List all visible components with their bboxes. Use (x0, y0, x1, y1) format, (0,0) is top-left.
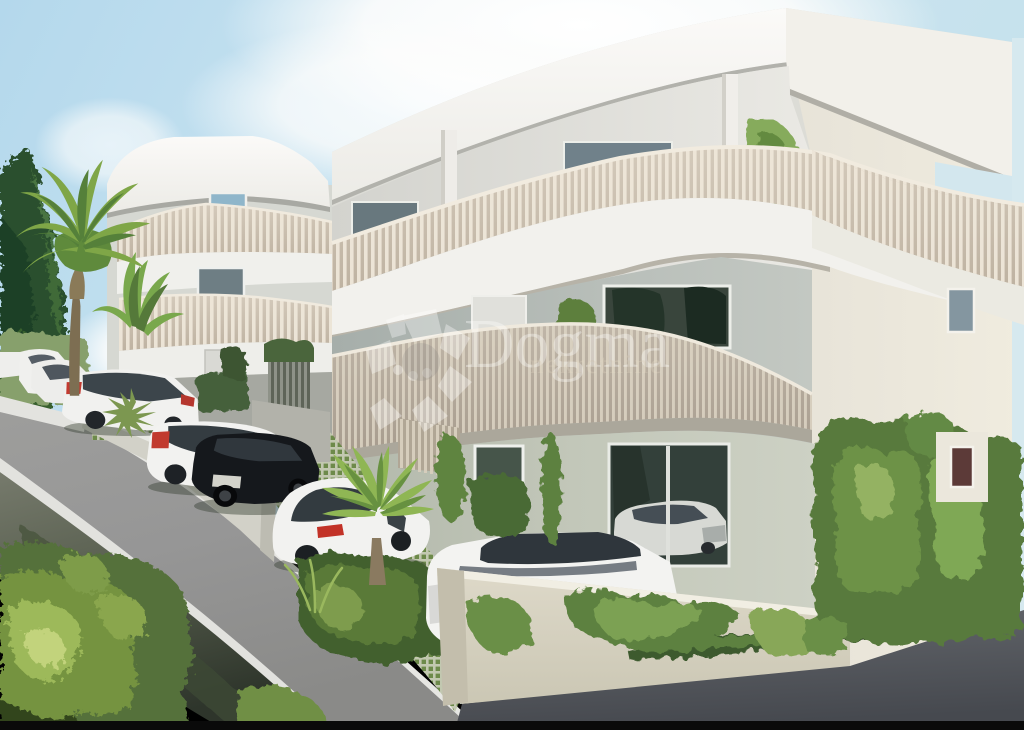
svg-text:nekretnine: nekretnine (530, 349, 664, 379)
